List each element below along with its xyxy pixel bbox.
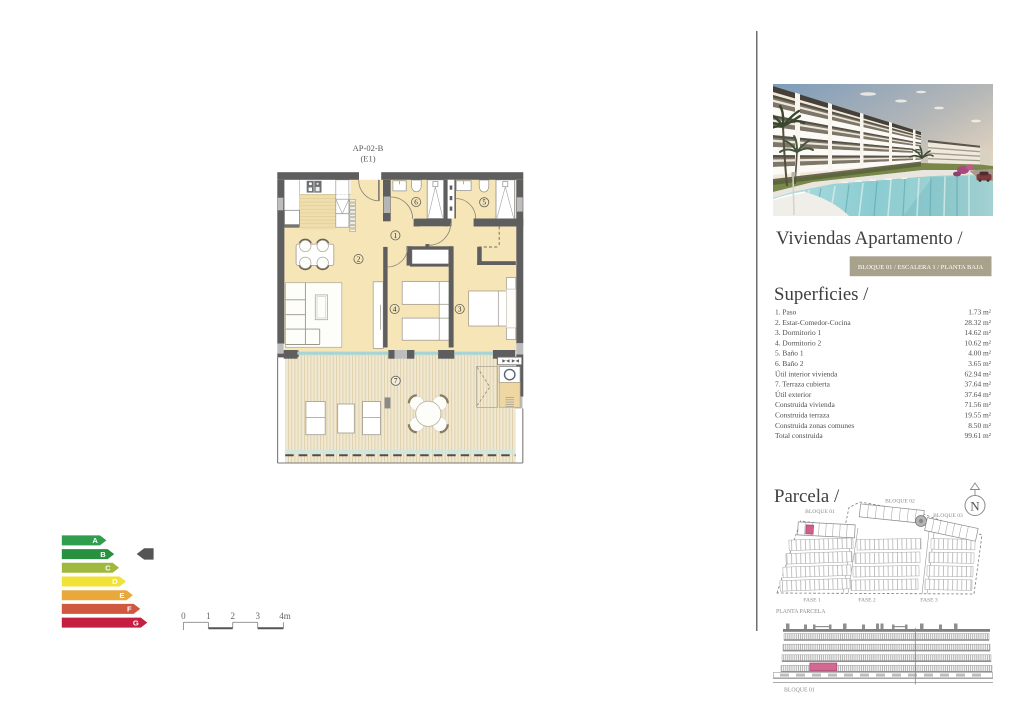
svg-text:BLOQUE 03: BLOQUE 03 [933,513,963,519]
svg-text:Útil interior vivienda: Útil interior vivienda [775,368,838,378]
svg-text:4m: 4m [279,611,291,621]
svg-text:E: E [119,591,124,600]
svg-text:6. Baño 2: 6. Baño 2 [775,359,804,368]
svg-text:0: 0 [181,611,186,621]
svg-text:1. Paso: 1. Paso [775,308,797,317]
svg-text:71.56 m²: 71.56 m² [965,400,992,409]
svg-text:Construida vivienda: Construida vivienda [775,400,835,409]
svg-text:14.62 m²: 14.62 m² [965,328,992,337]
svg-text:2: 2 [230,611,235,621]
svg-text:BLOQUE 01: BLOQUE 01 [784,688,815,694]
svg-text:5. Baño 1: 5. Baño 1 [775,349,804,358]
svg-text:1: 1 [206,611,211,621]
svg-text:2: 2 [357,255,361,263]
svg-text:C: C [105,564,111,573]
svg-text:Construida terraza: Construida terraza [775,411,830,420]
svg-text:Viviendas Apartamento /: Viviendas Apartamento / [776,228,963,249]
svg-text:Útil exterior: Útil exterior [775,389,812,399]
svg-text:19.55 m²: 19.55 m² [965,411,992,420]
svg-text:BLOQUE 02: BLOQUE 02 [885,499,915,505]
svg-text:4. Dormitorio 2: 4. Dormitorio 2 [775,338,821,347]
svg-text:3. Dormitorio 1: 3. Dormitorio 1 [775,328,821,337]
svg-text:8.50 m²: 8.50 m² [968,421,992,430]
svg-text:G: G [133,618,139,627]
svg-text:N: N [970,499,980,514]
svg-text:Superficies /: Superficies / [774,284,869,305]
svg-text:Construida zonas comunes: Construida zonas comunes [775,421,854,430]
svg-text:1.73 m²: 1.73 m² [968,308,992,317]
svg-text:7: 7 [394,377,398,385]
svg-text:37.64 m²: 37.64 m² [965,380,992,389]
svg-text:7. Terraza cubierta: 7. Terraza cubierta [775,380,831,389]
svg-text:5: 5 [482,199,486,207]
svg-text:4.00 m²: 4.00 m² [968,349,992,358]
svg-text:FASE 2: FASE 2 [858,598,876,604]
svg-text:A: A [92,536,98,545]
svg-text:B: B [100,550,106,559]
svg-text:1: 1 [394,232,398,240]
svg-text:AP-02-B: AP-02-B [353,143,384,153]
svg-text:3: 3 [458,305,462,313]
svg-text:FASE 3: FASE 3 [920,598,938,604]
svg-text:3.65 m²: 3.65 m² [968,359,992,368]
svg-text:D: D [112,577,118,586]
svg-text:37.64 m²: 37.64 m² [965,390,992,399]
svg-text:Total construida: Total construida [775,431,823,440]
svg-text:F: F [127,605,132,614]
svg-text:BLOQUE 01: BLOQUE 01 [805,509,835,515]
svg-text:3: 3 [255,611,260,621]
svg-text:FASE 1: FASE 1 [803,598,821,604]
svg-text:BLOQUE 01 / ESCALERA 1 / PLANT: BLOQUE 01 / ESCALERA 1 / PLANTA BAJA [858,264,984,271]
svg-text:99.61 m²: 99.61 m² [965,431,992,440]
svg-text:62.94 m²: 62.94 m² [965,369,992,378]
svg-text:28.32 m²: 28.32 m² [965,318,992,327]
svg-text:4: 4 [393,305,397,313]
svg-text:2. Estar-Comedor-Cocina: 2. Estar-Comedor-Cocina [775,318,851,327]
svg-text:6: 6 [414,198,418,206]
svg-text:10.62 m²: 10.62 m² [965,338,992,347]
svg-text:PLANTA PARCELA: PLANTA PARCELA [776,609,826,615]
svg-text:(E1): (E1) [360,154,375,164]
svg-text:Parcela /: Parcela / [774,486,840,507]
